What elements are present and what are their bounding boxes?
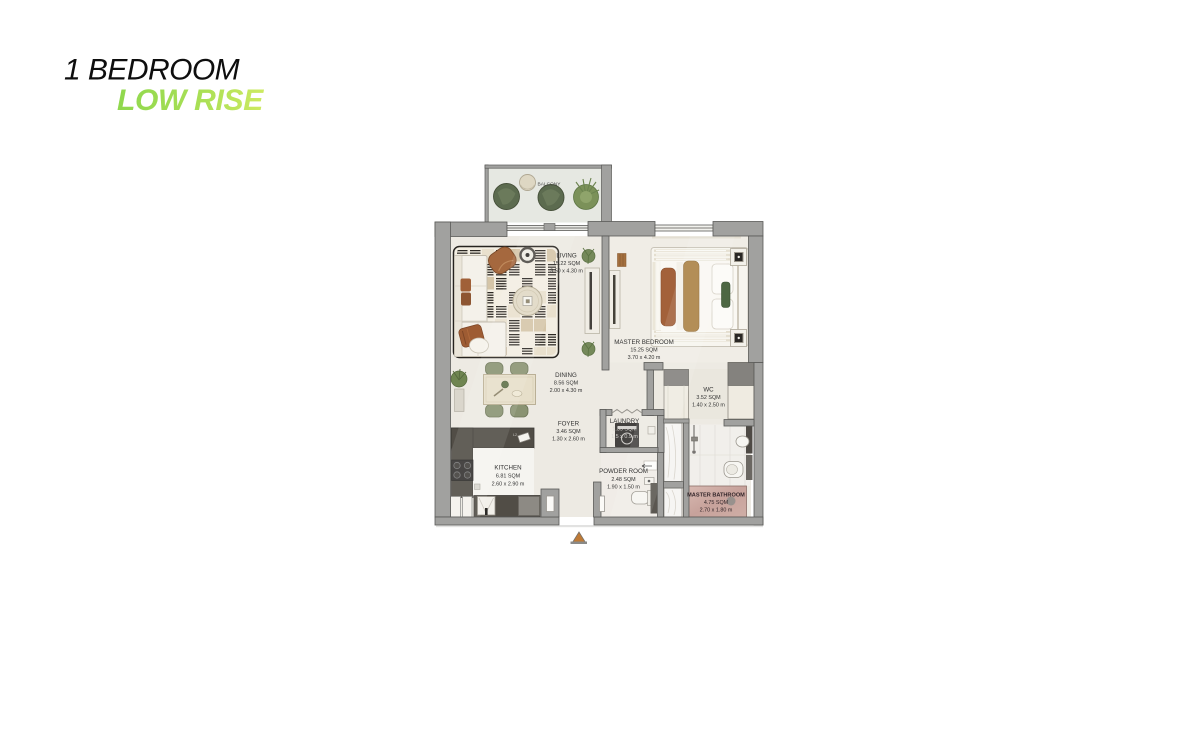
svg-text:15.22 SQM: 15.22 SQM <box>553 261 581 267</box>
svg-text:POWDER ROOM: POWDER ROOM <box>599 468 648 475</box>
svg-text:1 BEDROOM: 1 BEDROOM <box>64 54 240 87</box>
svg-text:2.60 x 2.90 m: 2.60 x 2.90 m <box>492 482 525 488</box>
svg-text:2.70 x 1.80 m: 2.70 x 1.80 m <box>700 508 733 514</box>
svg-text:3.46 SQM: 3.46 SQM <box>556 429 581 435</box>
svg-text:LAUNDRY: LAUNDRY <box>610 418 639 425</box>
svg-text:LOW RISE: LOW RISE <box>117 84 264 117</box>
svg-text:BALCONY: BALCONY <box>538 182 562 188</box>
svg-text:4.75 SQM: 4.75 SQM <box>704 500 729 506</box>
svg-text:3.50 x 4.30 m: 3.50 x 4.30 m <box>550 269 583 275</box>
svg-text:8.56 SQM: 8.56 SQM <box>554 381 579 387</box>
svg-text:3.52 SQM: 3.52 SQM <box>696 395 721 401</box>
svg-text:6.81 SQM: 6.81 SQM <box>496 474 521 480</box>
svg-text:3.70 x 4.20 m: 3.70 x 4.20 m <box>628 355 661 361</box>
svg-text:1.40 x 2.50 m: 1.40 x 2.50 m <box>692 403 725 409</box>
svg-text:15.25 SQM: 15.25 SQM <box>630 348 658 354</box>
svg-text:1.35 SQM: 1.35 SQM <box>612 427 637 433</box>
svg-text:1.5 x 0.9 m: 1.5 x 0.9 m <box>611 434 638 440</box>
svg-text:KITCHEN: KITCHEN <box>494 465 521 472</box>
svg-text:MASTER BEDROOM: MASTER BEDROOM <box>614 339 673 346</box>
svg-text:DINING: DINING <box>555 372 577 379</box>
svg-text:2.48 SQM: 2.48 SQM <box>611 477 636 483</box>
svg-text:FOYER: FOYER <box>558 421 580 428</box>
svg-text:1.30 x 2.60 m: 1.30 x 2.60 m <box>552 437 585 443</box>
svg-text:1.90 x 1.50 m: 1.90 x 1.50 m <box>607 485 640 491</box>
svg-text:MASTER BATHROOM: MASTER BATHROOM <box>687 493 745 499</box>
svg-text:2.00 x 4.30 m: 2.00 x 4.30 m <box>550 388 583 394</box>
svg-text:WC: WC <box>703 387 714 394</box>
svg-text:L2: L2 <box>513 433 517 437</box>
svg-text:LIVING: LIVING <box>556 253 576 260</box>
